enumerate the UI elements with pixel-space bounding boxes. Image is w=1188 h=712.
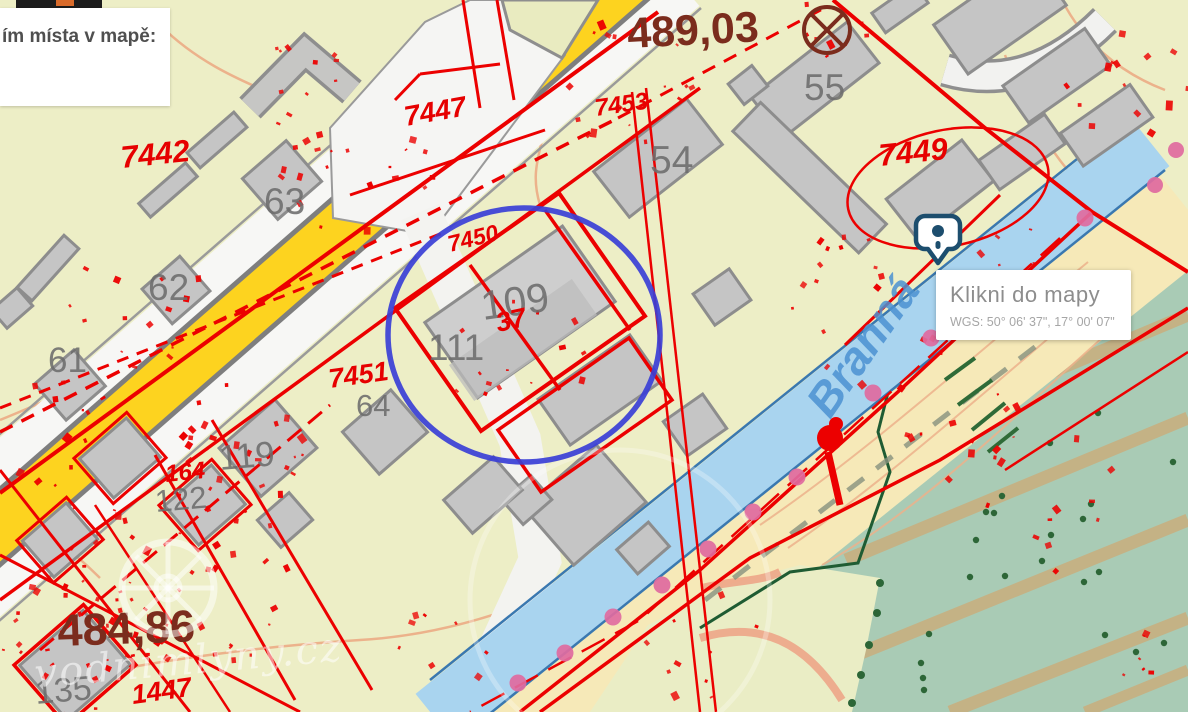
parcel-label-7449: 7449 <box>877 131 950 173</box>
map-stage[interactable]: Branná 63 62 61 55 54 64 109 111 119 122… <box>0 0 1188 712</box>
map-tooltip: Klikni do mapy WGS: 50° 06' 37", 17° 00'… <box>936 270 1131 340</box>
building-label-62: 62 <box>148 267 189 308</box>
building-label-61: 61 <box>48 341 87 380</box>
tooltip-title: Klikni do mapy <box>950 282 1115 308</box>
building-label-119: 119 <box>217 434 276 478</box>
marker-dot <box>932 225 944 237</box>
info-panel-text: ím místa v mapě: <box>2 26 156 48</box>
elevation-label-1: 489,03 <box>626 3 760 58</box>
parcel-label-7442: 7442 <box>119 133 191 175</box>
tooltip-coordinates: WGS: 50° 06' 37", 17° 00' 07" <box>950 315 1115 329</box>
info-panel: ím místa v mapě: <box>0 8 170 106</box>
building-label-64: 64 <box>356 388 390 423</box>
map-canvas[interactable]: Branná 63 62 61 55 54 64 109 111 119 122… <box>0 0 1188 712</box>
building-label-135: 135 <box>33 669 93 712</box>
parcel-label-164: 164 <box>164 457 207 488</box>
building-label-54: 54 <box>650 139 693 182</box>
building-label-55: 55 <box>804 67 845 108</box>
building-label-63: 63 <box>264 181 305 222</box>
building-label-111: 111 <box>428 327 484 368</box>
